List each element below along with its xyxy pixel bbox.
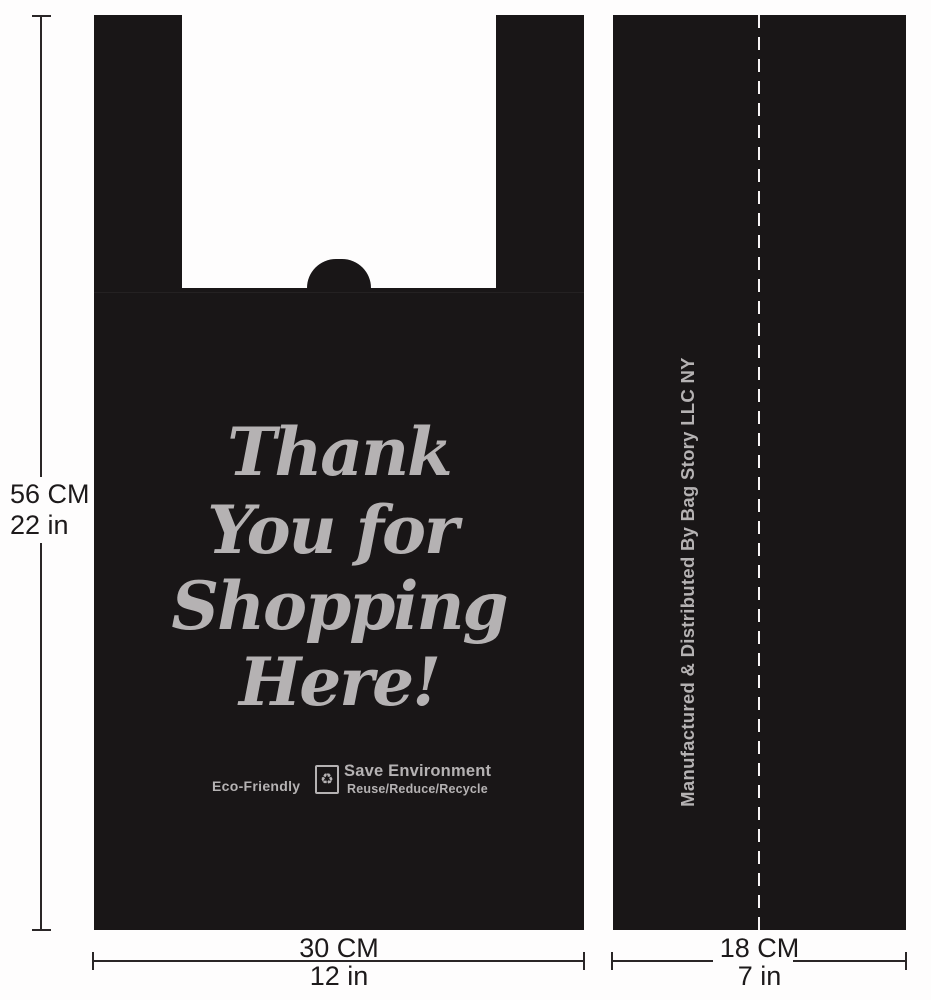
fold-dashed-line [758,15,760,930]
print-line-you-for: You for [87,495,577,565]
bag-front-view: Thank You for Shopping Here! Eco-Friendl… [94,15,584,930]
print-line-here: Here! [94,647,584,717]
height-dimension-line [40,15,42,931]
save-environment-label: Save Environment [344,762,491,781]
center-tab [307,259,371,288]
side-width-cm-value: 18 CM [613,933,906,964]
side-width-in-value: 7 in [613,961,906,992]
recycle-icon-glyph: ♻ [320,772,333,787]
height-cm-value: 56 CM [10,479,90,510]
print-line-shopping: Shopping [94,571,584,641]
product-diagram: 56 CM 22 in Thank You for Shopping Here!… [0,0,931,1000]
height-in-value: 22 in [10,510,90,541]
height-dimension-top-cap [32,15,51,17]
reuse-reduce-recycle-label: Reuse/Reduce/Recycle [347,782,488,796]
front-width-cm-value: 30 CM [94,933,584,964]
height-dimension-label: 56 CM 22 in [7,477,93,543]
front-width-in-value: 12 in [94,961,584,992]
handle-cutout [182,15,496,288]
shoulder-seam-line [94,292,584,293]
bag-side-view: Manufactured & Distributed By Bag Story … [613,15,906,930]
recycle-icon: ♻ [315,765,339,794]
eco-friendly-label: Eco-Friendly [212,778,300,794]
manufacturer-vertical-text: Manufactured & Distributed By Bag Story … [677,352,699,812]
height-dimension-bottom-cap [32,929,51,931]
print-line-thank: Thank [94,417,584,487]
